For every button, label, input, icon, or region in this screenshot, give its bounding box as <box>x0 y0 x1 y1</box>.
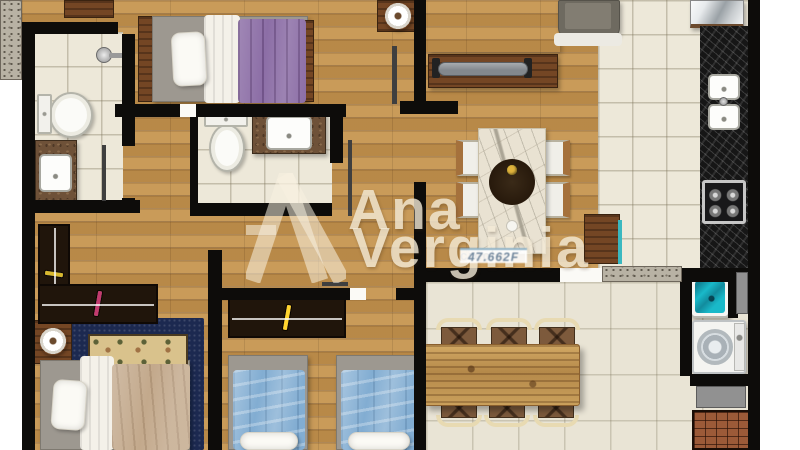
chair-back <box>533 415 579 427</box>
twin-bed-left-pillow <box>240 432 298 450</box>
door-leaf-bedroom1 <box>392 46 397 104</box>
wall-bath1-right-upper <box>122 34 135 146</box>
wall-bedroom3-top-right <box>396 288 416 300</box>
cooktop <box>702 180 746 224</box>
balcony-chair-top-3 <box>534 318 580 347</box>
tv <box>438 62 528 76</box>
balcony-chair-top-1 <box>436 318 482 347</box>
wall-hall-right-upper <box>414 0 426 114</box>
fruit-bowl <box>489 159 535 205</box>
door-gap-bath2 <box>180 104 196 117</box>
fridge <box>690 0 744 28</box>
bed1-purple-blanket <box>238 19 306 103</box>
chair-back <box>484 415 530 427</box>
wash-tank-water <box>695 281 725 313</box>
toilet1-bowl <box>49 92 93 138</box>
door-leaf-hallway <box>348 140 352 216</box>
entry-wood-strip <box>64 0 114 18</box>
toilet1-tank <box>37 94 52 134</box>
wall-bath1-top <box>22 22 118 34</box>
dining-chair-4 <box>544 182 570 218</box>
kitchen-granite-counter <box>700 26 748 268</box>
wall-bedroom3-top <box>208 288 352 300</box>
washer-drum <box>697 329 733 365</box>
vanity2-basin <box>266 116 312 150</box>
bed2-tan-blanket <box>112 364 190 450</box>
wall-laundry-left <box>680 282 692 376</box>
washer-control-panel <box>734 323 745 371</box>
lamp-top <box>384 2 412 30</box>
wall-bath2-right <box>330 115 343 163</box>
wall-bath2-left <box>190 115 198 205</box>
door-leaf-bedroom3 <box>322 282 348 286</box>
wall-right-facade <box>748 0 760 450</box>
wall-entry-stub <box>400 101 458 114</box>
vanity1-basin <box>39 154 72 192</box>
wall-balcony-top-a <box>426 268 560 282</box>
floor-plan: Ana Verginia creci 47.662F <box>0 0 800 450</box>
laundry-door-panel <box>696 386 746 408</box>
wall-bedroom-divider <box>208 250 222 450</box>
wall-bedroom1-bottom <box>115 104 346 117</box>
wall-bath1-bottom <box>22 200 140 213</box>
sofa-base-mat <box>554 33 622 46</box>
kitchen-door-glass <box>618 220 622 264</box>
sofa-cushion <box>565 3 611 29</box>
twin-bed-right-pillow <box>348 432 410 450</box>
balcony-chair-top-2 <box>486 318 532 347</box>
wall-below-washer <box>690 374 748 386</box>
living-room-rug <box>428 0 560 52</box>
dining-chair-3 <box>544 140 570 176</box>
toilet2-bowl <box>209 124 245 172</box>
bed1-pillow <box>171 31 208 87</box>
wardrobe-bedroom3 <box>228 298 346 338</box>
kitchen-door <box>584 214 620 264</box>
door-gap-balcony <box>560 268 602 282</box>
wall-bath2-bottom <box>190 203 332 216</box>
chair-back <box>436 415 482 427</box>
wall-hall-right-lower <box>414 182 426 450</box>
kitchen-sink-basin-2 <box>708 104 740 130</box>
bed2-pillow <box>50 379 87 431</box>
wardrobe-left-wide <box>38 284 158 324</box>
kitchen-faucet <box>719 97 728 106</box>
stone-texture-corner <box>0 0 22 80</box>
barbecue-grill <box>692 410 750 450</box>
door-gap-bedroom3 <box>350 288 366 300</box>
lamp-left <box>39 327 67 355</box>
wall-left <box>22 22 35 450</box>
small-plate <box>506 220 518 232</box>
bed1-sheet <box>204 15 240 103</box>
rustic-wood-table <box>424 344 580 406</box>
granite-sill <box>602 266 682 282</box>
laundry-window <box>736 272 748 314</box>
door-leaf-bathroom1 <box>102 145 106 201</box>
